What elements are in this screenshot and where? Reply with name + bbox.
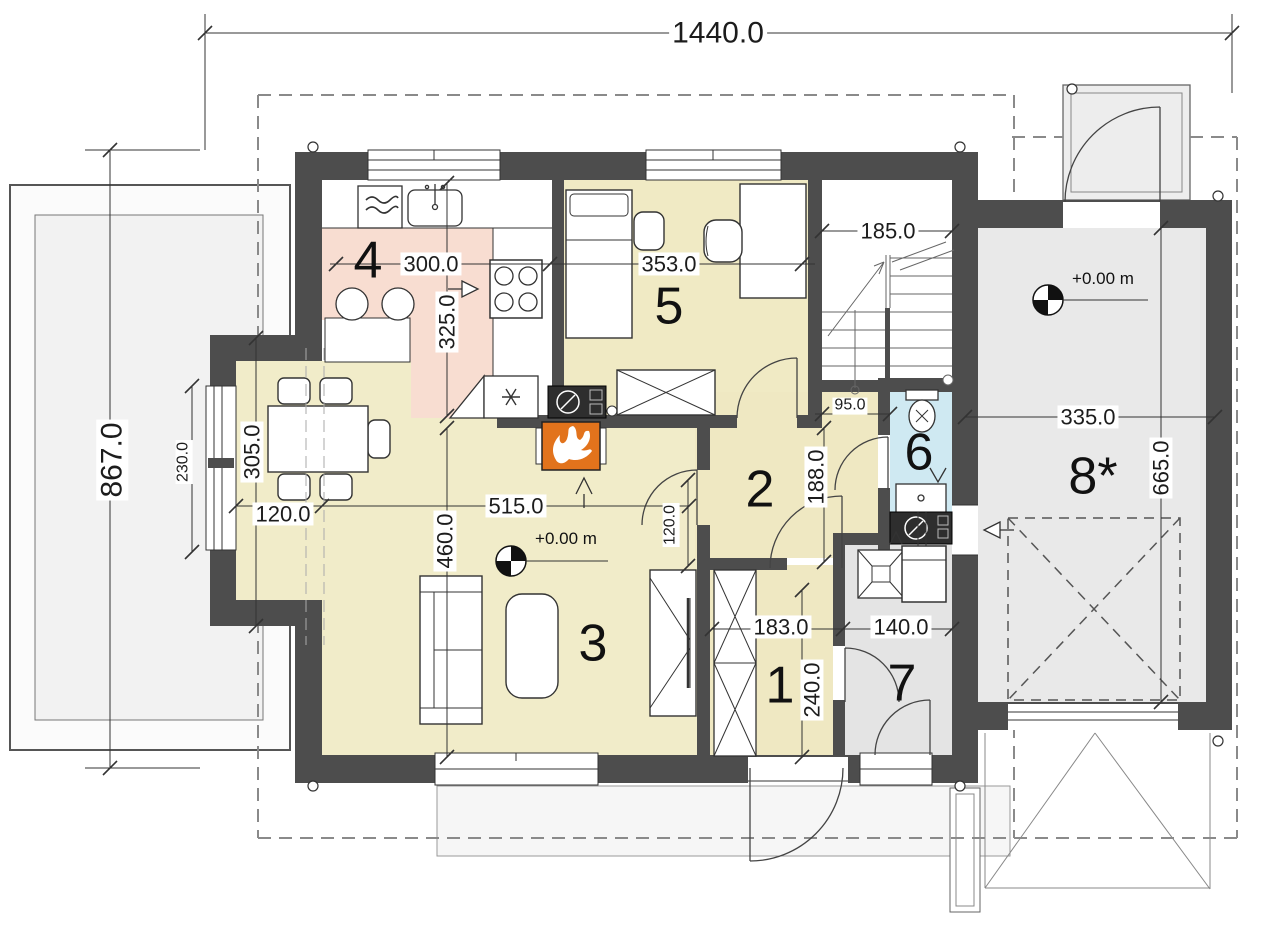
dim-garage-width: 335.0: [1057, 405, 1118, 428]
dim-entry-depth: 240.0: [800, 659, 823, 720]
garage-entry-opening: [1063, 202, 1160, 228]
tv-unit: [650, 570, 696, 716]
dim-bedroom-width: 353.0: [638, 252, 699, 275]
garage-side-opening: [952, 505, 978, 555]
garage-gate: [1008, 704, 1178, 730]
room-number-hallway: 2: [746, 463, 775, 518]
porch: [437, 786, 1010, 912]
dim-bay-window: 230.0: [176, 440, 193, 484]
living-floor: [322, 418, 697, 757]
entry-wardrobe: [714, 570, 756, 756]
dim-bay-depth: 305.0: [240, 421, 263, 482]
nightstand: [634, 212, 664, 250]
room-number-kitchen: 4: [354, 234, 383, 289]
dim-tech-width: 140.0: [870, 615, 931, 638]
room-number-entry: 1: [766, 659, 795, 714]
window-top-2: [646, 150, 781, 180]
floor-plan: 1440.0 867.0 300.0 353.0 185.0 325.0 305…: [0, 0, 1280, 942]
sofa: [420, 576, 482, 724]
dim-overall-depth: 867.0: [96, 419, 128, 500]
window-living-south: [435, 753, 598, 785]
window-bay: [206, 386, 236, 550]
dim-living-depth: 460.0: [433, 510, 456, 571]
room-number-tech: 7: [888, 657, 917, 712]
floor-drain-icon: [858, 550, 904, 598]
dim-kitchen-depth: 325.0: [435, 291, 458, 352]
coffee-table: [506, 594, 558, 698]
dim-living-width: 515.0: [485, 494, 546, 517]
room-number-living: 3: [579, 617, 608, 672]
window-tech: [860, 753, 932, 785]
dim-stair-width: 185.0: [857, 219, 918, 242]
counter-corner: [325, 318, 410, 362]
kitchen-sink-icon: [408, 184, 462, 226]
roof-hip-lines: [985, 733, 1210, 889]
room-number-garage: 8*: [1068, 450, 1117, 505]
dim-hall-passage: 120.0: [663, 503, 680, 547]
room-number-bedroom: 5: [655, 280, 684, 335]
garage-canopy: [1063, 85, 1190, 200]
level-label-living: +0.00 m: [535, 530, 597, 548]
dim-hall-depth: 188.0: [804, 446, 827, 507]
water-heater: [902, 546, 946, 602]
washing-machine-icon: [358, 186, 402, 228]
desk-chair: [704, 220, 742, 262]
dining-table: [268, 406, 368, 472]
level-label-garage: +0.00 m: [1072, 270, 1134, 288]
dim-garage-depth: 665.0: [1149, 437, 1172, 498]
cooktop-icon: [490, 260, 542, 318]
dim-bay-recess: 120.0: [252, 502, 313, 525]
dim-entry-width: 183.0: [750, 615, 811, 638]
window-top-1: [368, 150, 500, 180]
desk: [740, 184, 806, 298]
wardrobe-bedroom: [617, 370, 715, 415]
dim-kitchen-width: 300.0: [400, 252, 461, 275]
room-number-bathroom: 6: [905, 426, 934, 481]
dim-overall-width: 1440.0: [669, 17, 767, 49]
dim-corridor-width: 95.0: [832, 398, 867, 415]
